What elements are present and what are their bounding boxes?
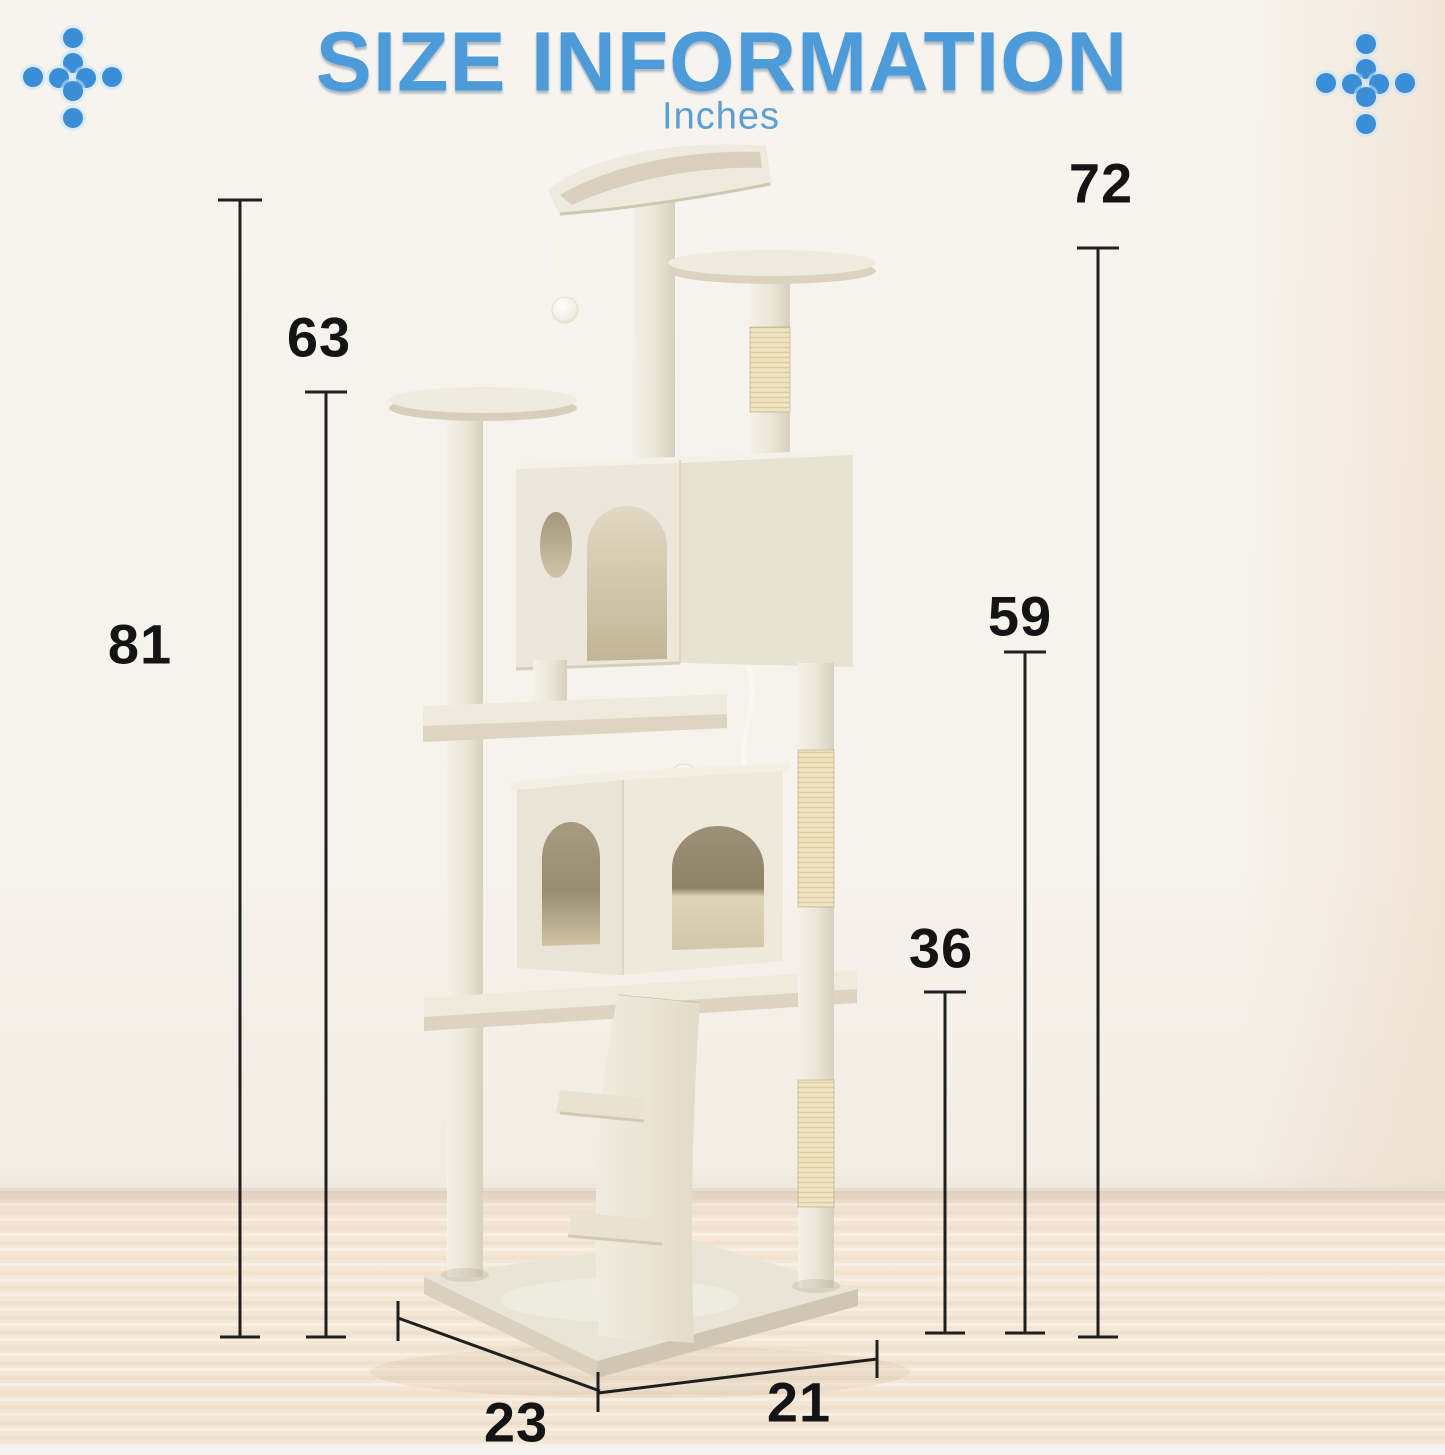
decor-dots-right [1286, 4, 1445, 164]
dot-icon [1356, 114, 1376, 134]
dimension-label-left-perch-height: 63 [287, 305, 351, 370]
size-information-infographic: SIZE INFORMATION Inches [0, 0, 1445, 1445]
dot-icon [1316, 73, 1336, 93]
dot-icon [1356, 34, 1376, 54]
dot-icon [102, 67, 122, 87]
unit-subtitle: Inches [662, 96, 780, 139]
dimension-label-upper-platform-height: 59 [988, 584, 1052, 649]
dot-icon [63, 108, 83, 128]
dot-icon [23, 67, 43, 87]
background-floor [0, 1188, 1445, 1445]
dimension-label-right-post-height: 72 [1069, 151, 1133, 216]
dimension-label-base-width: 21 [767, 1370, 831, 1435]
dot-icon [1356, 87, 1376, 107]
dot-icon [63, 81, 83, 101]
decor-dots-left [0, 0, 153, 158]
dot-icon [1395, 73, 1415, 93]
dimension-label-total-height: 81 [108, 612, 172, 677]
dimension-label-lower-platform-height: 36 [909, 916, 973, 981]
dot-icon [63, 28, 83, 48]
